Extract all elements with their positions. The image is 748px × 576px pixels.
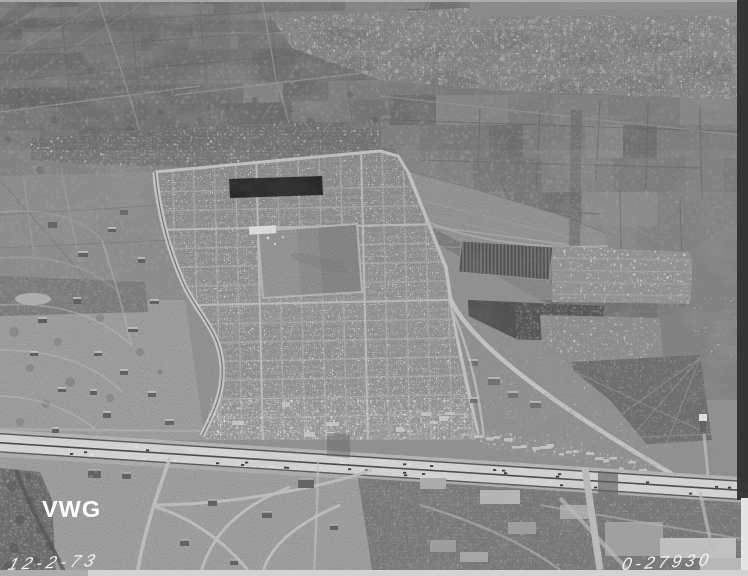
svg-text:VWG: VWG [42,496,101,522]
